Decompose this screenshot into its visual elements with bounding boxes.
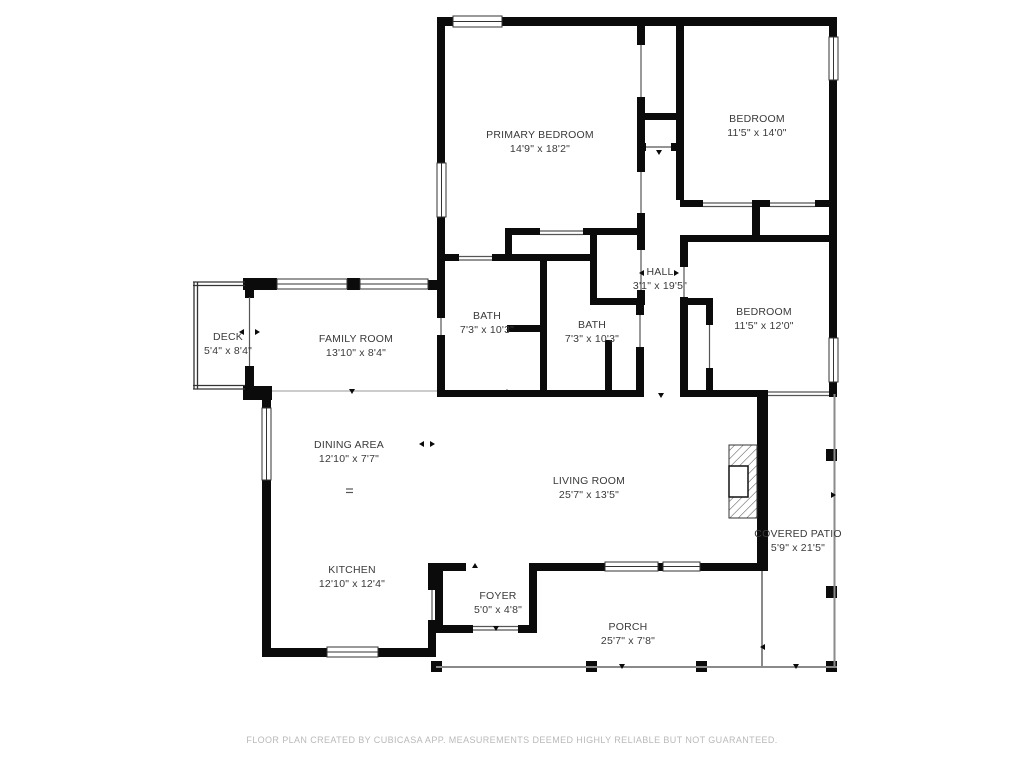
floor-plan-drawing xyxy=(0,0,1024,768)
footer-disclaimer: FLOOR PLAN CREATED BY CUBICASA APP. MEAS… xyxy=(0,735,1024,745)
windows xyxy=(262,16,838,657)
walls xyxy=(243,17,837,672)
deck-railing xyxy=(193,282,245,389)
floor-plan: PRIMARY BEDROOM 14'9" x 18'2" BEDROOM 11… xyxy=(0,0,1024,768)
opening-marks xyxy=(239,21,836,669)
door-openings xyxy=(250,45,830,630)
fireplace xyxy=(729,445,757,518)
